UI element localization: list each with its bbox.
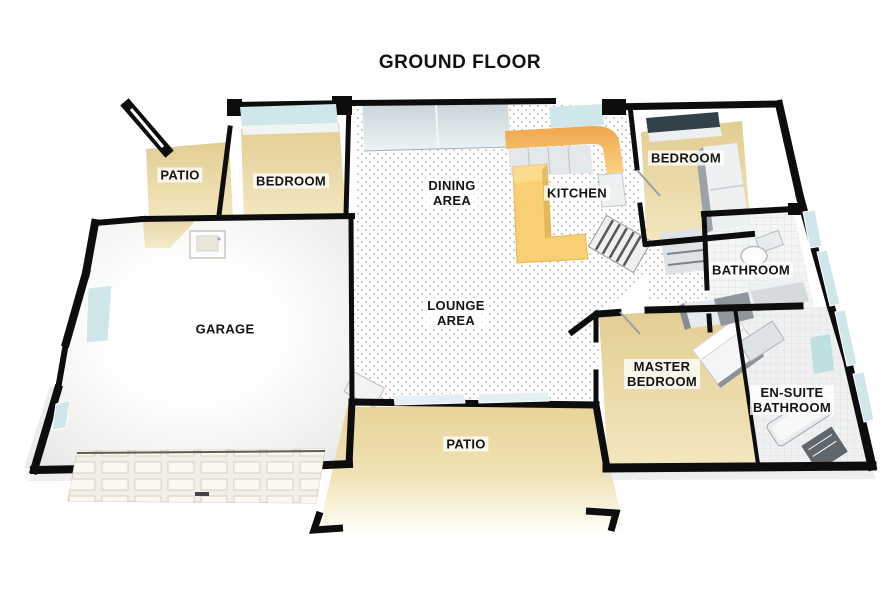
garage-door [68, 449, 325, 503]
room-label-bedroom-left: BEDROOM [253, 174, 329, 189]
floor-plan-page: GROUND FLOOR PATIO BEDROOM DINING AREA K… [0, 0, 896, 604]
room-label-garage: GARAGE [193, 322, 258, 337]
room-label-master-bedroom: MASTER BEDROOM [624, 359, 700, 389]
room-label-dining-area: DINING AREA [425, 178, 478, 208]
room-label-patio-bottom: PATIO [443, 437, 488, 452]
garage-sink [190, 231, 225, 258]
room-label-patio-top: PATIO [157, 168, 202, 183]
room-label-bathroom: BATHROOM [709, 263, 793, 278]
kitchen-window [549, 104, 604, 128]
bedroom-left-window [240, 104, 338, 126]
page-title: GROUND FLOOR [379, 52, 541, 74]
floor-bedroom-left [241, 123, 346, 217]
patio-door [478, 392, 549, 403]
right-wall-glazing [803, 210, 822, 248]
floor-patio-bottom [318, 405, 624, 533]
pergola-beam [128, 106, 166, 150]
room-label-kitchen: KITCHEN [544, 186, 610, 201]
patio-door [394, 394, 465, 405]
room-label-ensuite-bathroom: EN-SUITE BATHROOM [750, 385, 834, 415]
room-label-bedroom-right: BEDROOM [648, 151, 724, 166]
garage-window [86, 285, 112, 343]
room-label-lounge-area: LOUNGE AREA [424, 298, 487, 328]
